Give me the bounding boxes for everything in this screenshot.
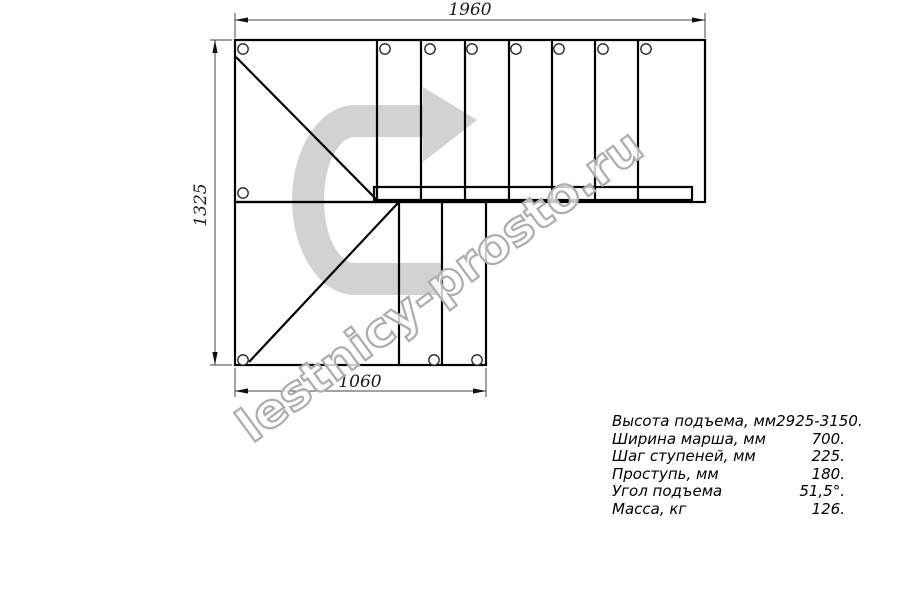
spec-row-tread: Проступь, мм 180. [612,466,845,484]
stair-outline [235,40,705,365]
spec-label: Высота подъема, мм [612,413,776,431]
spec-row-angle: Угол подъема 51,5°. [612,483,845,501]
spec-row-height: Высота подъема, мм 2925-3150. [612,413,845,431]
specs-table: Высота подъема, мм 2925-3150. Ширина мар… [612,413,845,519]
spec-value: 51,5°. [799,483,845,501]
spec-value: 225. [812,448,845,466]
spec-value: 700. [812,431,845,449]
spec-label: Ширина марша, мм [612,431,766,449]
spec-label: Масса, кг [612,501,686,519]
spec-label: Шаг ступеней, мм [612,448,756,466]
spec-value: 180. [812,466,845,484]
dim-left-label: 1325 [191,183,211,226]
dimension-arrowheads [212,17,705,393]
dim-top-label: 1960 [448,0,491,20]
spec-row-step-pitch: Шаг ступеней, мм 225. [612,448,845,466]
dimension-lines [210,13,705,397]
spec-value: 2925-3150. [776,413,863,431]
site-watermark-text: lestnicy-prosto.ru [226,119,653,454]
spec-row-mass: Масса, кг 126. [612,501,845,519]
spec-row-march-width: Ширина марша, мм 700. [612,431,845,449]
spec-value: 126. [812,501,845,519]
spec-label: Угол подъема [612,483,722,501]
spec-label: Проступь, мм [612,466,719,484]
